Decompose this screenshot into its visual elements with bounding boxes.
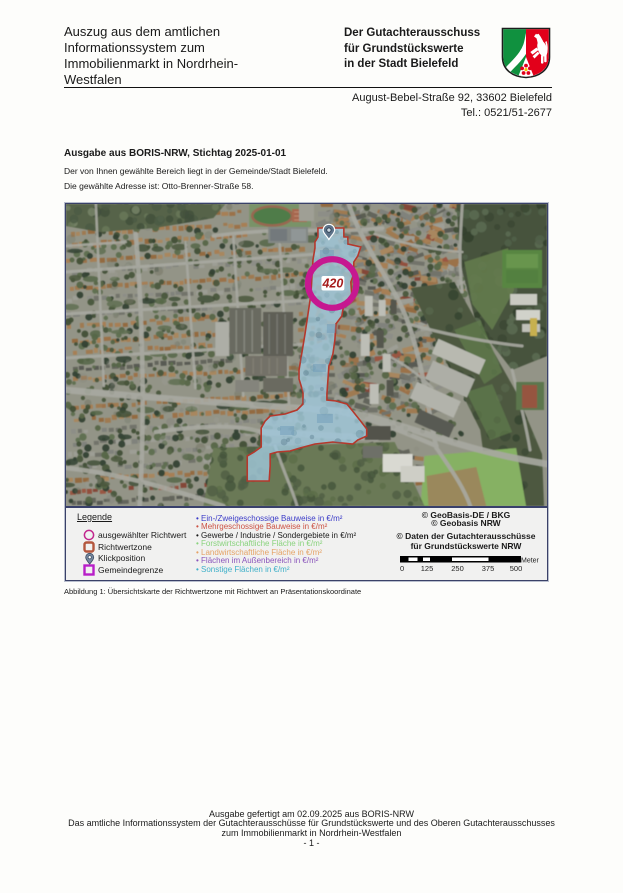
svg-text:420: 420: [322, 277, 344, 291]
svg-text:375: 375: [482, 564, 495, 572]
svg-text:0: 0: [400, 564, 404, 572]
svg-text:250: 250: [451, 564, 464, 572]
svg-text:500: 500: [510, 564, 523, 572]
svg-text:Meter: Meter: [521, 558, 540, 565]
svg-text:125: 125: [421, 564, 434, 572]
